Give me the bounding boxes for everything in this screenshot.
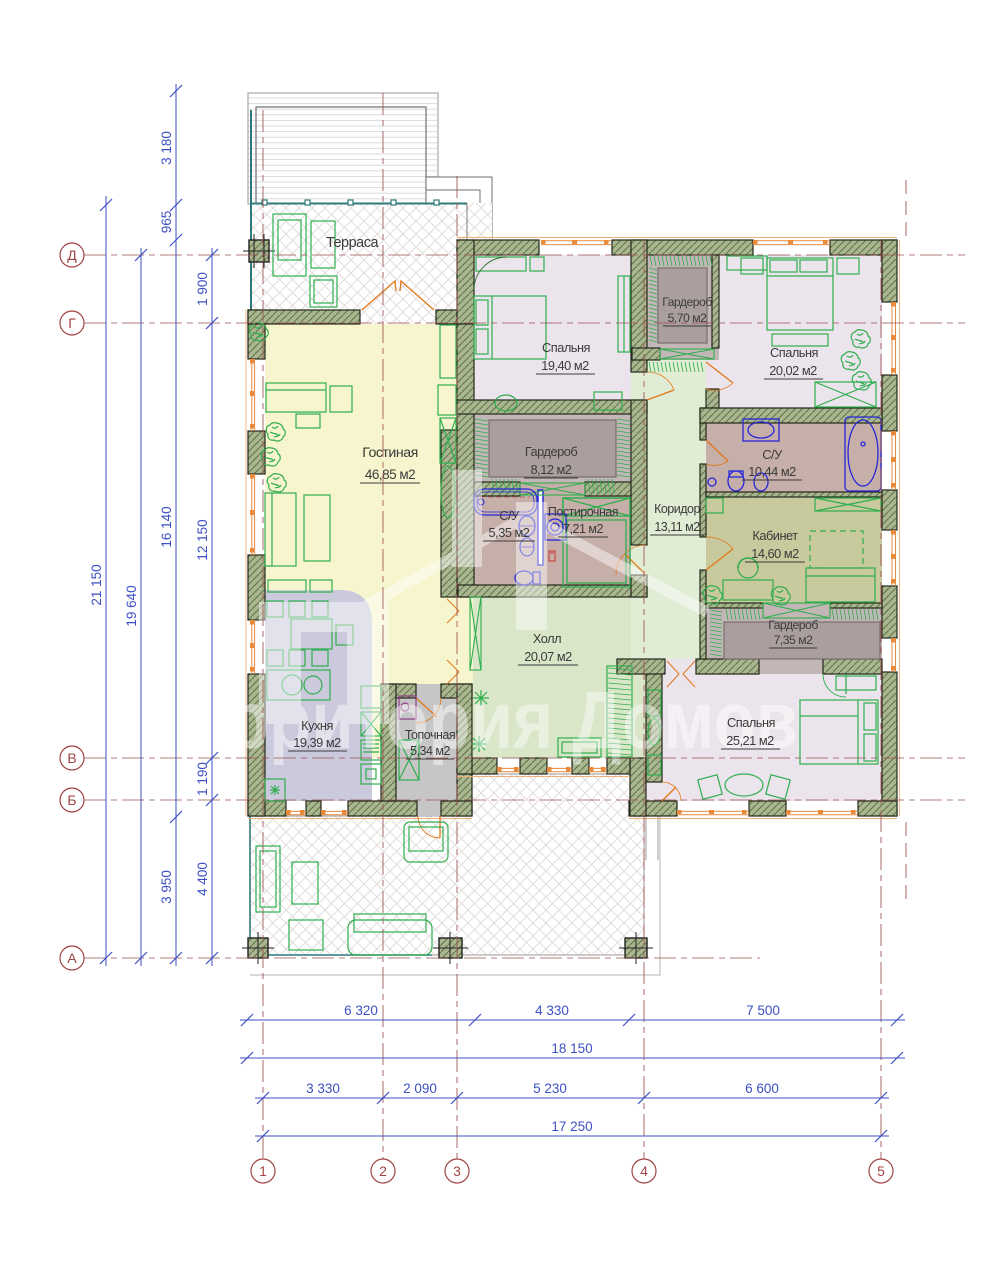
svg-text:19 640: 19 640 <box>124 585 139 626</box>
svg-text:Г: Г <box>68 315 76 331</box>
svg-text:3 950: 3 950 <box>159 870 174 904</box>
svg-text:17 250: 17 250 <box>551 1119 592 1134</box>
svg-text:1 900: 1 900 <box>195 272 210 306</box>
svg-text:13,11 м2: 13,11 м2 <box>654 520 700 534</box>
svg-text:С/У: С/У <box>499 508 520 523</box>
svg-text:14,60 м2: 14,60 м2 <box>751 546 799 561</box>
svg-text:3 330: 3 330 <box>306 1081 340 1096</box>
svg-text:В: В <box>67 750 76 766</box>
svg-text:Гардероб: Гардероб <box>768 618 818 632</box>
svg-text:18 150: 18 150 <box>551 1041 592 1056</box>
svg-text:8,12 м2: 8,12 м2 <box>531 462 572 477</box>
svg-text:965: 965 <box>159 211 174 234</box>
svg-text:Постирочная: Постирочная <box>548 505 618 519</box>
svg-text:7 500: 7 500 <box>746 1003 780 1018</box>
svg-text:7,35 м2: 7,35 м2 <box>774 633 813 647</box>
svg-text:25,21 м2: 25,21 м2 <box>726 733 774 748</box>
svg-text:Гардероб: Гардероб <box>525 444 577 459</box>
svg-text:19,39 м2: 19,39 м2 <box>293 735 341 750</box>
svg-text:5 230: 5 230 <box>533 1081 567 1096</box>
svg-text:Гостиная: Гостиная <box>362 445 418 461</box>
svg-text:4: 4 <box>640 1163 648 1179</box>
svg-text:А: А <box>67 950 77 966</box>
svg-text:20,07 м2: 20,07 м2 <box>524 649 572 664</box>
svg-text:1 190: 1 190 <box>195 762 210 796</box>
svg-text:5,34 м2: 5,34 м2 <box>410 744 450 758</box>
svg-text:7,21 м2: 7,21 м2 <box>563 522 603 536</box>
svg-text:Кухня: Кухня <box>301 718 333 733</box>
svg-text:5,35 м2: 5,35 м2 <box>489 525 530 540</box>
svg-text:Б: Б <box>67 792 76 808</box>
svg-text:3: 3 <box>453 1163 461 1179</box>
svg-text:Топочная: Топочная <box>405 728 455 742</box>
svg-text:6 320: 6 320 <box>344 1003 378 1018</box>
svg-text:Холл: Холл <box>533 631 561 646</box>
svg-text:6 600: 6 600 <box>745 1081 779 1096</box>
svg-text:1: 1 <box>259 1163 267 1179</box>
svg-text:Коридор: Коридор <box>654 502 700 516</box>
svg-text:12 150: 12 150 <box>195 519 210 560</box>
svg-text:3 180: 3 180 <box>159 131 174 165</box>
svg-text:21 150: 21 150 <box>89 564 104 605</box>
svg-text:Территория Домов: Территория Домов <box>150 675 798 766</box>
svg-text:Спальня: Спальня <box>770 345 818 360</box>
svg-text:Спальня: Спальня <box>727 715 775 730</box>
svg-text:16 140: 16 140 <box>159 506 174 547</box>
svg-text:Д: Д <box>67 247 77 263</box>
svg-text:Кабинет: Кабинет <box>752 528 798 543</box>
svg-text:4 400: 4 400 <box>195 862 210 896</box>
svg-text:20,02 м2: 20,02 м2 <box>769 363 817 378</box>
svg-text:10,44 м2: 10,44 м2 <box>748 464 796 479</box>
svg-text:Спальня: Спальня <box>542 340 590 355</box>
svg-text:46,85 м2: 46,85 м2 <box>365 467 415 482</box>
svg-text:2 090: 2 090 <box>403 1081 437 1096</box>
svg-text:2: 2 <box>379 1163 387 1179</box>
svg-text:С/У: С/У <box>762 447 783 462</box>
svg-text:4 330: 4 330 <box>535 1003 569 1018</box>
svg-text:Гардероб: Гардероб <box>662 295 712 309</box>
svg-text:19,40 м2: 19,40 м2 <box>541 358 589 373</box>
svg-text:Терраса: Терраса <box>326 235 380 251</box>
svg-text:5: 5 <box>877 1163 885 1179</box>
